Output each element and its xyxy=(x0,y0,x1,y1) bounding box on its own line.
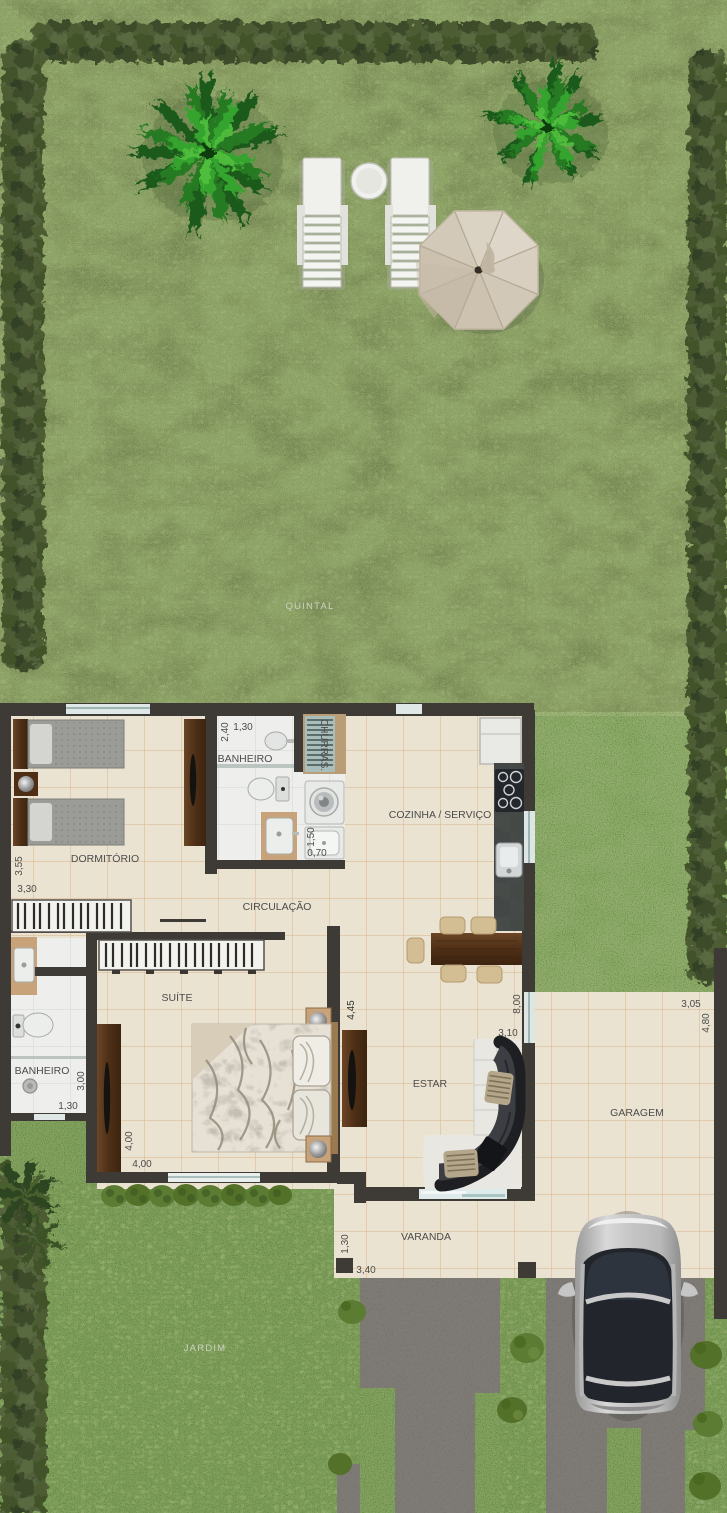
svg-text:BANHEIRO: BANHEIRO xyxy=(218,753,273,765)
svg-text:1,30: 1,30 xyxy=(233,722,253,733)
svg-text:QUINTAL: QUINTAL xyxy=(286,601,335,612)
svg-text:2,40: 2,40 xyxy=(220,722,231,742)
svg-text:SUÍTE: SUÍTE xyxy=(162,991,193,1004)
svg-text:DORMITÓRIO: DORMITÓRIO xyxy=(71,852,139,865)
svg-text:ESTAR: ESTAR xyxy=(413,1078,448,1090)
svg-text:8,00: 8,00 xyxy=(512,994,523,1014)
svg-text:1,30: 1,30 xyxy=(58,1101,78,1112)
svg-text:3,10: 3,10 xyxy=(498,1028,518,1039)
svg-text:GARAGEM: GARAGEM xyxy=(610,1107,664,1119)
svg-text:COZINHA / SERVIÇO: COZINHA / SERVIÇO xyxy=(389,809,492,821)
svg-text:3,05: 3,05 xyxy=(681,999,701,1010)
svg-text:0,70: 0,70 xyxy=(307,848,327,859)
svg-text:4,00: 4,00 xyxy=(132,1159,152,1170)
svg-text:JARDIM: JARDIM xyxy=(184,1343,227,1354)
svg-text:3,00: 3,00 xyxy=(76,1071,87,1091)
svg-text:VARANDA: VARANDA xyxy=(401,1231,451,1243)
svg-text:1,30: 1,30 xyxy=(340,1234,351,1254)
svg-text:CHURRAS.: CHURRAS. xyxy=(318,719,329,771)
svg-text:CIRCULAÇÃO: CIRCULAÇÃO xyxy=(243,900,312,913)
svg-text:4,80: 4,80 xyxy=(701,1013,712,1033)
svg-text:4,00: 4,00 xyxy=(124,1131,135,1151)
svg-text:3,55: 3,55 xyxy=(14,856,25,876)
svg-text:1,50: 1,50 xyxy=(306,827,317,847)
svg-text:4,45: 4,45 xyxy=(346,1000,357,1020)
svg-text:3,30: 3,30 xyxy=(17,884,37,895)
svg-text:BANHEIRO: BANHEIRO xyxy=(15,1065,70,1077)
svg-text:3,40: 3,40 xyxy=(356,1265,376,1276)
